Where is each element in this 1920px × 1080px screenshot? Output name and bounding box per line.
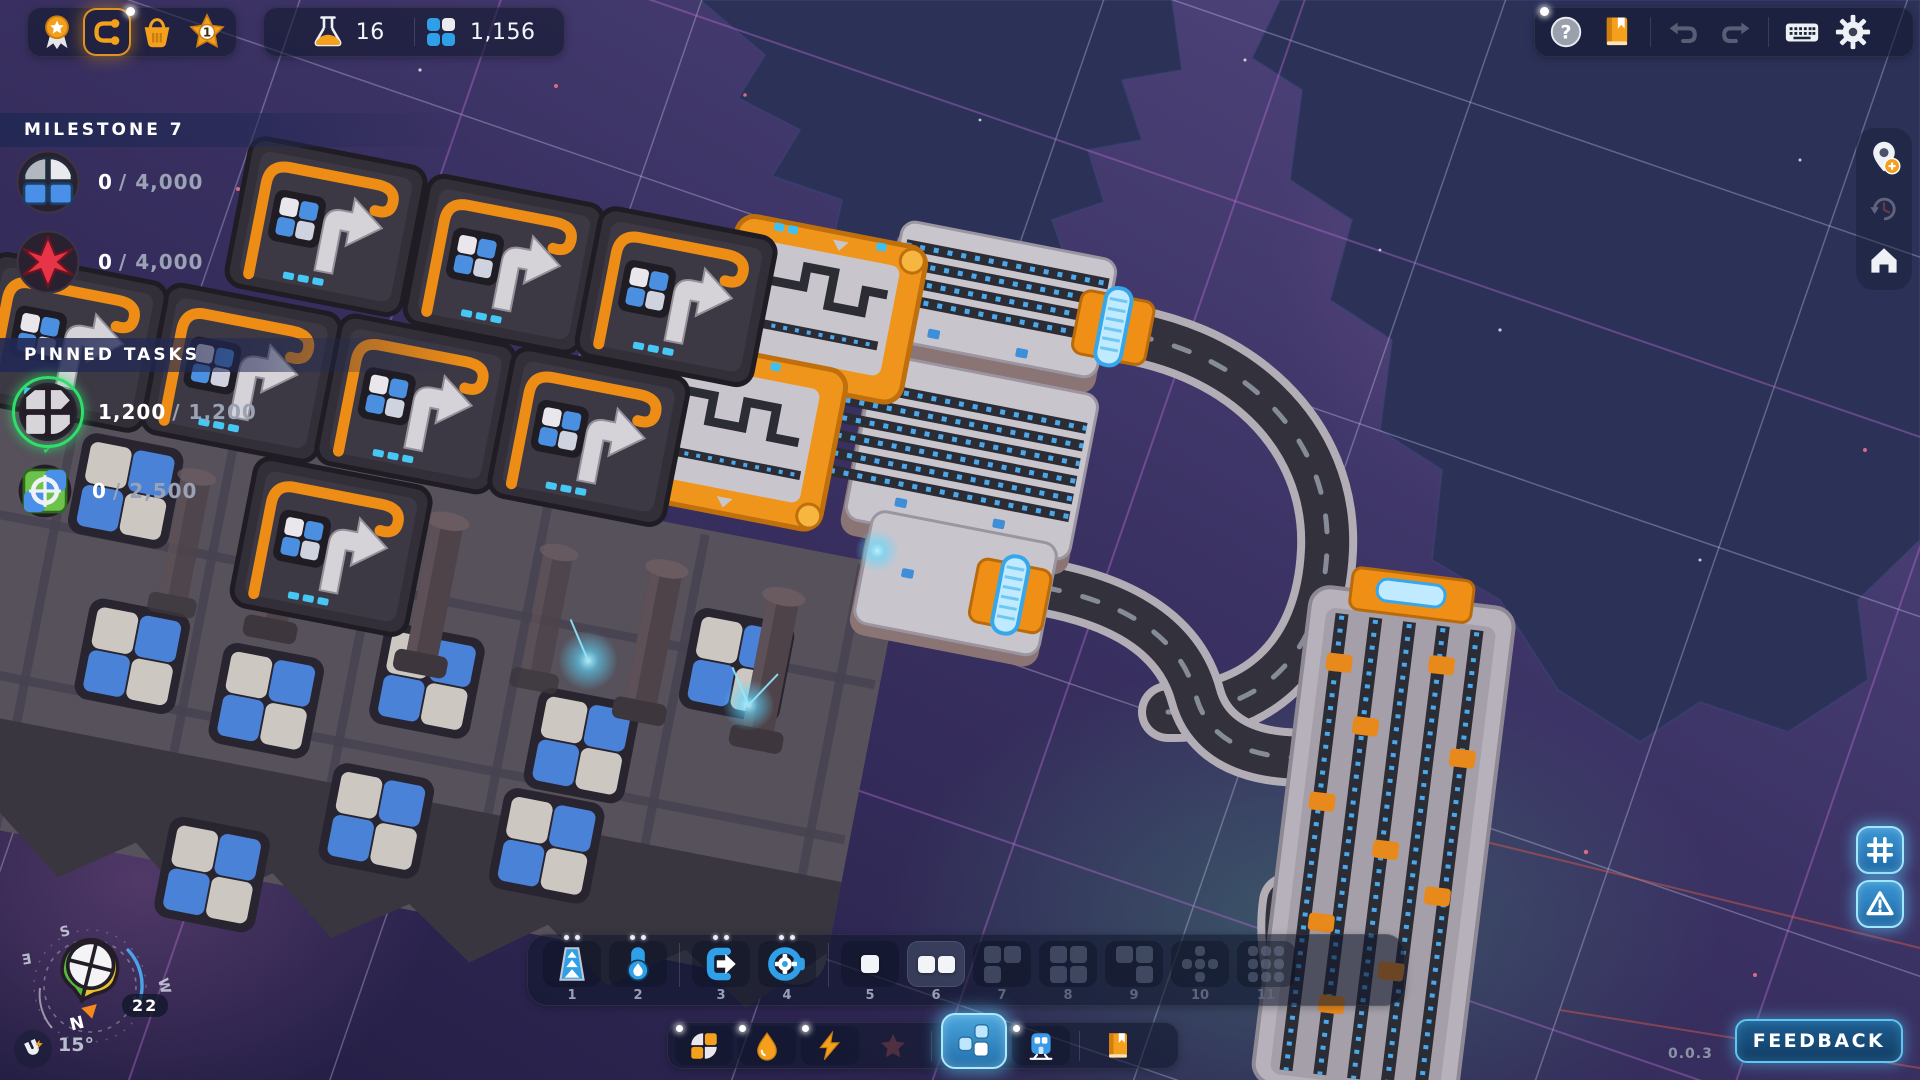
slot-pin-dots: [779, 935, 795, 940]
milestone-goal-1[interactable]: 0/ 4,000: [16, 150, 203, 214]
window-shape-icon: [16, 150, 80, 214]
slot-number: 10: [1191, 988, 1209, 1003]
shape-pattern-icon: [1116, 946, 1153, 983]
slot-number: 6: [931, 988, 940, 1003]
resources-panel: 16 1,156: [263, 7, 565, 57]
waypoint-button[interactable]: [1864, 136, 1904, 180]
knowledge-button[interactable]: [1595, 10, 1639, 54]
slot-number: 5: [865, 988, 874, 1003]
shape-pattern-icon: [861, 955, 879, 973]
slot-number: 8: [1063, 988, 1072, 1003]
version-label: 0.0.3: [1668, 1046, 1713, 1062]
notification-dot: [676, 1025, 683, 1032]
research-flask-icon: [312, 14, 344, 50]
shapes-menu-button[interactable]: [675, 1026, 733, 1065]
pinned-task-2[interactable]: 0/ 2,500: [16, 462, 197, 520]
toolbar-divider: [1079, 1031, 1080, 1061]
shape-slot-tile: [973, 941, 1031, 987]
notification-dot: [802, 1025, 809, 1032]
history-button[interactable]: [1864, 189, 1904, 229]
notification-dot: [126, 7, 135, 16]
shape-pattern-icon: [984, 946, 1021, 983]
game-world-viewport[interactable]: [0, 0, 1920, 1080]
shop-basket-icon: [138, 13, 176, 51]
routes-icon: [88, 13, 126, 51]
notification-dot: [1013, 1025, 1020, 1032]
build-menu-toolbar: [667, 1022, 1179, 1069]
warning-icon: [1864, 888, 1896, 920]
pump-icon: [617, 943, 659, 985]
current-shape-pin-icon: [48, 926, 132, 1010]
train-icon: [1025, 1030, 1057, 1062]
redo-icon: [1717, 14, 1753, 50]
belt-icon: [551, 943, 593, 985]
home-button[interactable]: [1864, 238, 1904, 282]
slot-pin-dots: [564, 935, 580, 940]
shape-slot-tile: [1039, 941, 1097, 987]
gear-icon: [1834, 13, 1872, 51]
hotbar-slot-4[interactable]: 4: [757, 941, 817, 1003]
hotbar-slot-1[interactable]: 1: [542, 941, 602, 1003]
slot-number: 7: [997, 988, 1006, 1003]
belt-slot-tile: [543, 941, 601, 987]
task-current: 1,200: [98, 400, 166, 424]
shapes-currency-icon: [424, 15, 458, 49]
hotbar-slot-6[interactable]: 6: [906, 941, 966, 1003]
slot-number: 3: [716, 988, 725, 1003]
rank-button[interactable]: 1: [185, 10, 229, 54]
shape-pattern-icon: [1182, 946, 1218, 982]
hotbar-slot-10[interactable]: 10: [1170, 941, 1230, 1003]
alerts-button[interactable]: [1856, 880, 1904, 928]
hotbar-divider: [828, 943, 829, 987]
research-count: 16: [356, 20, 385, 45]
home-icon: [1866, 242, 1902, 278]
goal-current: 0: [98, 170, 113, 194]
medal-icon: [38, 13, 76, 51]
hotbar: 1234567891011: [527, 934, 1405, 1006]
cutter-icon: [766, 943, 808, 985]
view-tools-panel: [1856, 128, 1912, 290]
fluids-menu-button[interactable]: [738, 1026, 796, 1065]
settings-button[interactable]: [1831, 10, 1875, 54]
feedback-button[interactable]: FEEDBACK: [1735, 1019, 1903, 1063]
slot-number: 4: [782, 988, 791, 1003]
trains-menu-button[interactable]: [1012, 1026, 1070, 1065]
target-shape-icon: [16, 462, 74, 520]
grid-toggle-button[interactable]: [1856, 826, 1904, 874]
game-screen: 1 16 1,156 ?: [0, 0, 1920, 1080]
knowledge-book-icon: [1600, 14, 1634, 50]
shapes-layer-button-active[interactable]: [941, 1013, 1007, 1069]
milestones-button[interactable]: [35, 10, 79, 54]
compass[interactable]: S E W N 22 15°: [10, 918, 180, 1078]
keybindings-button[interactable]: [1780, 10, 1824, 54]
goal-total: / 4,000: [119, 250, 204, 274]
pinned-tasks-header: PINNED TASKS: [0, 338, 470, 372]
pump-slot-tile: [609, 941, 667, 987]
slot-pin-dots: [630, 935, 646, 940]
fluid-droplet-icon: [751, 1030, 783, 1062]
top-left-toolbar: 1: [27, 7, 237, 57]
hotbar-slot-9[interactable]: 9: [1104, 941, 1164, 1003]
shop-button[interactable]: [135, 10, 179, 54]
launcher-icon: [700, 943, 742, 985]
toolbar-divider: [931, 1031, 932, 1061]
help-glyph: ?: [1560, 22, 1571, 44]
hotbar-slot-2[interactable]: 2: [608, 941, 668, 1003]
shape-pattern-icon: [1050, 946, 1087, 983]
undo-button[interactable]: [1662, 10, 1706, 54]
magnet-icon: [20, 1036, 46, 1062]
lightning-bolt-icon: [814, 1030, 846, 1062]
notification-dot: [739, 1025, 746, 1032]
shapes-layer-icon: [955, 1022, 993, 1060]
help-button[interactable]: ?: [1544, 10, 1588, 54]
research-points[interactable]: 16: [283, 14, 414, 50]
redo-button[interactable]: [1713, 10, 1757, 54]
hotbar-slot-8[interactable]: 8: [1038, 941, 1098, 1003]
help-icon: ?: [1547, 13, 1585, 51]
toolbar-divider: [1768, 17, 1769, 47]
history-clock-icon: [1867, 192, 1901, 226]
hotbar-slot-11[interactable]: 11: [1236, 941, 1296, 1003]
rank-number: 1: [203, 26, 211, 40]
compass-bearing: 22: [122, 994, 168, 1017]
goal-current: 0: [98, 250, 113, 274]
cutter-slot-tile: [758, 941, 816, 987]
shape-slot-tile: [1237, 941, 1295, 987]
goal-total: / 4,000: [119, 170, 204, 194]
locked-star-icon: [877, 1030, 909, 1062]
pinned-tasks-title: PINNED TASKS: [24, 345, 200, 365]
shape-pattern-icon: [1248, 946, 1284, 982]
keyboard-icon: [1783, 13, 1821, 51]
rank-star-icon: 1: [187, 12, 227, 52]
slot-number: 1: [567, 988, 576, 1003]
book-icon: [1103, 1030, 1133, 1062]
red-star-shape-icon: [16, 230, 80, 294]
grid-icon: [1864, 834, 1896, 866]
pin-add-icon: [1866, 138, 1902, 178]
hotbar-slot-7[interactable]: 7: [972, 941, 1032, 1003]
shape-pattern-icon: [918, 956, 955, 973]
shape-slot-tile: [841, 941, 899, 987]
task-complete-ring: [12, 376, 84, 448]
slot-number: 9: [1129, 988, 1138, 1003]
shapes-count: 1,156: [470, 20, 535, 45]
locked-menu-button: [864, 1026, 922, 1065]
shape-slot-tile: [1105, 941, 1163, 987]
hotbar-divider: [679, 943, 680, 987]
task-complete-check: ✓: [42, 440, 55, 458]
routes-button[interactable]: [85, 10, 129, 54]
hotbar-slot-3[interactable]: 3: [691, 941, 751, 1003]
shapes-currency[interactable]: 1,156: [415, 15, 546, 49]
snap-angle: 15°: [58, 1034, 94, 1056]
electricity-menu-button[interactable]: [801, 1026, 859, 1065]
milestone-header: MILESTONE 7: [0, 113, 470, 147]
wiki-button[interactable]: [1089, 1026, 1147, 1065]
top-right-toolbar: ?: [1534, 7, 1914, 57]
toolbar-divider: [1650, 17, 1651, 47]
snap-indicator[interactable]: [14, 1030, 52, 1068]
slot-number: 11: [1257, 988, 1275, 1003]
hotbar-slot-5[interactable]: 5: [840, 941, 900, 1003]
help-notification-dot: [1540, 7, 1549, 16]
task-total: / 1,200: [172, 400, 257, 424]
slot-pin-dots: [713, 935, 729, 940]
milestone-number: 7: [170, 120, 185, 140]
task-current: 0: [92, 479, 107, 503]
shapes-menu-icon: [687, 1029, 721, 1063]
task-total: / 2,500: [113, 479, 198, 503]
shape-slot-tile: [1171, 941, 1229, 987]
pinned-task-1[interactable]: ✓ 1,200/ 1,200: [16, 380, 257, 444]
slot-number: 2: [633, 988, 642, 1003]
milestone-goal-2[interactable]: 0/ 4,000: [16, 230, 203, 294]
milestone-title: MILESTONE: [24, 120, 161, 140]
shape-slot-tile: [907, 941, 965, 987]
launcher-slot-tile: [692, 941, 750, 987]
undo-icon: [1666, 14, 1702, 50]
